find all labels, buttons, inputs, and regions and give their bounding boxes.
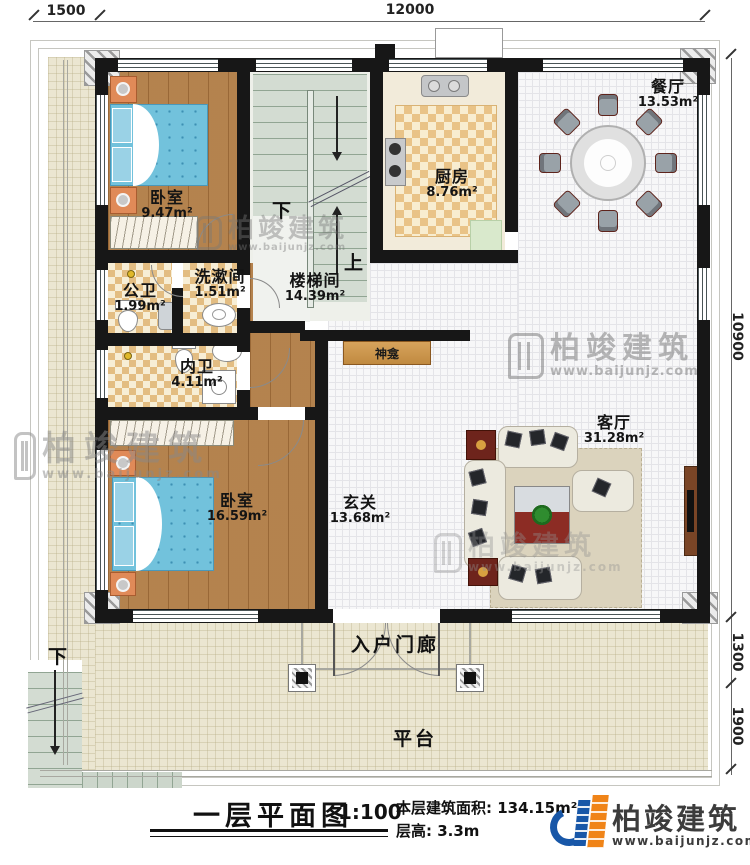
watermark-text: 柏竣建筑www.baijunjz.com <box>468 533 623 574</box>
dim-tick <box>94 9 105 20</box>
watermark-logo-icon <box>508 333 544 379</box>
pillow <box>114 526 134 566</box>
watermark-url: www.baijunjz.com <box>42 468 223 482</box>
room-area: 13.53m² <box>618 96 718 111</box>
room-label-stairwell: 楼梯间14.39m² <box>270 272 360 304</box>
floor-area-label: 本层建筑面积: <box>396 799 492 817</box>
stair-down-arrow-icon <box>332 152 342 161</box>
pillow <box>112 108 132 143</box>
porch-column <box>288 664 316 692</box>
window <box>256 59 352 71</box>
porch-beam <box>301 623 303 664</box>
watermark-logo-icon <box>14 432 36 480</box>
window <box>389 59 487 71</box>
watermark-logo-icon <box>434 533 462 573</box>
title-underline <box>150 836 388 837</box>
dining-chair <box>539 153 561 173</box>
dim-top-left: 1500 <box>42 3 90 19</box>
wall-stair-kitchen <box>370 72 383 263</box>
room-area: 13.68m² <box>315 512 405 527</box>
room-name: 玄关 <box>315 494 405 512</box>
sofa-cushion <box>471 499 488 516</box>
washbasin-bowl-icon <box>212 309 226 320</box>
room-name: 卧室 <box>192 492 282 510</box>
watermark-url: www.baijunjz.com <box>468 561 623 574</box>
wall-stair-south <box>245 321 305 333</box>
platform-edge-line <box>40 776 712 777</box>
outdoor-stair-down-label: 下 <box>48 642 67 669</box>
sofa-cushion <box>529 429 546 446</box>
lamp-icon <box>116 578 130 592</box>
watermark: 柏竣建筑www.baijunjz.com <box>508 333 699 379</box>
watermark-name: 柏竣建筑 <box>228 214 348 244</box>
dining-chair <box>655 153 677 173</box>
wall-notch <box>375 44 395 58</box>
watermark-name: 柏竣建筑 <box>550 331 694 366</box>
wall-bath2-east <box>237 346 250 352</box>
watermark-url: www.baijunjz.com <box>228 243 348 254</box>
nightstand <box>110 76 137 103</box>
title-block: 一层平面图 1:100 本层建筑面积: 134.15m² 层高: 3.3m 柏竣… <box>0 788 750 865</box>
room-name: 厨房 <box>407 168 497 186</box>
watermark: 柏竣建筑www.baijunjz.com <box>434 533 623 574</box>
wall-bedroom2-north <box>108 407 258 420</box>
front-door-opening <box>333 609 440 623</box>
room-area: 8.76m² <box>407 186 497 201</box>
dim-right-height: 10900 <box>729 312 745 360</box>
light-pull-icon <box>127 270 135 278</box>
column-core <box>296 672 308 684</box>
dim-right-platform: 1900 <box>729 706 745 746</box>
window <box>133 610 258 622</box>
wall-bath-divider <box>108 333 250 346</box>
dim-top-main: 12000 <box>382 2 438 18</box>
floor-height-label: 层高: <box>396 822 432 840</box>
room-label-dining: 餐厅13.53m² <box>618 78 718 110</box>
porch-column <box>456 664 484 692</box>
room-label-bedroom2: 卧室16.59m² <box>192 492 282 524</box>
wall-shrine <box>300 330 470 341</box>
sink-bowl-icon <box>448 80 460 92</box>
room-name: 餐厅 <box>618 78 718 96</box>
room-area: 4.11m² <box>152 376 242 391</box>
room-name: 公卫 <box>104 282 176 300</box>
watermark-name: 柏竣建筑 <box>42 429 210 469</box>
room-area: 31.28m² <box>569 432 659 447</box>
room-area: 14.39m² <box>270 290 360 305</box>
stair-down-arrow-icon <box>50 746 60 755</box>
title-underline <box>150 829 388 832</box>
window <box>96 95 108 205</box>
room-name: 内卫 <box>152 358 242 376</box>
room-label-living: 客厅31.28m² <box>569 414 659 446</box>
window <box>698 268 710 320</box>
sink-bowl-icon <box>428 80 440 92</box>
wall-bedroom2-east <box>315 341 328 609</box>
room-label-kitchen: 厨房8.76m² <box>407 168 497 200</box>
platform-path-line <box>67 60 68 765</box>
wall-bedroom2-north <box>305 407 328 420</box>
column-core <box>464 672 476 684</box>
platform-label: 平台 <box>375 724 455 751</box>
dining-chair <box>598 94 618 116</box>
watermark-text: 柏竣建筑www.baijunjz.com <box>228 216 348 254</box>
watermark: 柏竣建筑www.baijunjz.com <box>14 432 223 481</box>
room-label-bath2: 内卫4.11m² <box>152 358 242 390</box>
room-area: 1.99m² <box>104 300 176 315</box>
floor-height-row: 层高: 3.3m <box>396 820 479 841</box>
burner-icon <box>389 143 401 155</box>
pillow <box>112 147 132 182</box>
window <box>543 59 683 71</box>
stair-arrow-line <box>336 96 338 152</box>
room-label-foyer: 玄关13.68m² <box>315 494 405 526</box>
brand-logo-icon <box>550 792 608 854</box>
dining-table-center <box>600 155 616 171</box>
light-pull-icon <box>124 352 132 360</box>
tv-icon <box>687 490 694 532</box>
lamp-icon <box>116 82 130 96</box>
room-area: 16.59m² <box>192 510 282 525</box>
burner-icon <box>389 165 401 177</box>
watermark: 柏竣建筑www.baijunjz.com <box>196 216 348 254</box>
nightstand <box>110 572 136 596</box>
porch-beam <box>469 623 471 664</box>
flue-box <box>435 28 503 58</box>
watermark-text: 柏竣建筑www.baijunjz.com <box>42 432 223 481</box>
logo-tower-orange <box>587 795 609 848</box>
watermark-text: 柏竣建筑www.baijunjz.com <box>550 333 699 378</box>
wall-kitchen-dining <box>505 72 518 232</box>
porch-label: 入户门廊 <box>330 630 460 657</box>
window <box>512 610 660 622</box>
wall-washroom-east <box>237 308 250 333</box>
plant-icon <box>529 502 555 528</box>
room-label-washroom: 洗漱间1.51m² <box>175 268 265 300</box>
wall-bath2-east <box>237 390 250 407</box>
dimension-line-top <box>33 21 705 22</box>
shrine-table: 神龛 <box>343 341 431 365</box>
platform-edge-line <box>40 770 712 771</box>
brand-name: 柏竣建筑 <box>612 796 740 838</box>
dim-tick <box>28 9 39 20</box>
flower-icon <box>476 440 486 450</box>
room-name: 卧室 <box>122 189 212 207</box>
floor-height-value: 3.3m <box>437 822 479 840</box>
brand-url: www.baijunjz.com <box>612 834 750 848</box>
shrine-label: 神龛 <box>375 347 399 361</box>
room-name: 洗漱间 <box>175 268 265 286</box>
plan-scale: 1:100 <box>338 800 402 824</box>
window <box>118 59 218 71</box>
room-label-bath1: 公卫1.99m² <box>104 282 176 314</box>
dim-right-porch: 1300 <box>729 632 745 672</box>
room-name: 客厅 <box>569 414 659 432</box>
sofa-cushion <box>505 431 523 449</box>
watermark-name: 柏竣建筑 <box>468 531 596 562</box>
pillow <box>114 482 134 522</box>
wall-kitchen-south <box>370 250 518 263</box>
watermark-url: www.baijunjz.com <box>550 365 699 379</box>
dim-tick <box>699 9 710 20</box>
dining-chair <box>598 210 618 232</box>
stair-arrow-line <box>54 670 56 746</box>
side-table <box>466 430 496 460</box>
window <box>96 350 108 398</box>
window <box>698 95 710 205</box>
watermark-logo-icon <box>196 216 222 250</box>
floor-plan: 神龛 <box>0 0 750 865</box>
room-area: 1.51m² <box>175 286 265 301</box>
